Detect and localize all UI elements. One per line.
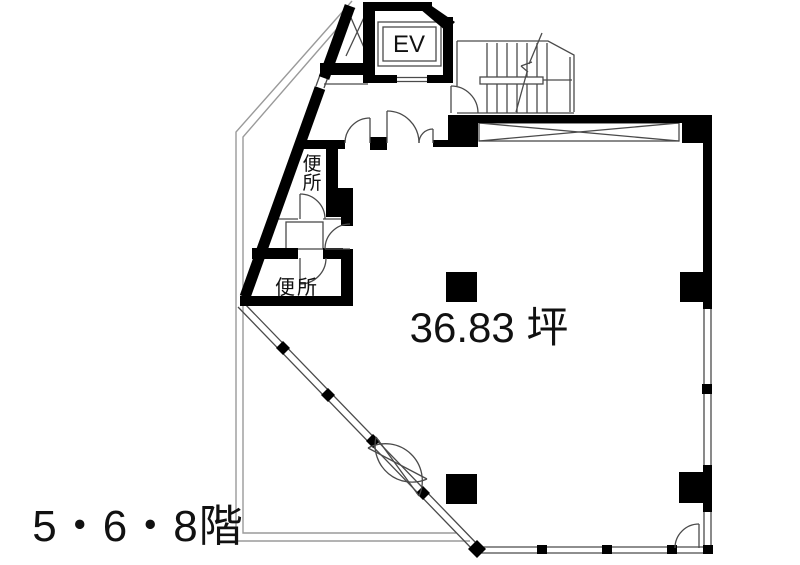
main-entry-double-door (387, 111, 433, 143)
toilet-upper-label-char1: 便 (302, 153, 321, 175)
mullion (702, 384, 712, 394)
ev-wall-right (443, 17, 453, 83)
hall-wall-piece (370, 137, 387, 150)
right-column-lower (679, 472, 703, 503)
toilet-lower-label: 便所 (275, 276, 319, 299)
labels: EV 便 所 便所 36.83 坪 5・6・8階 (32, 31, 568, 551)
hall-wall-right-piece (433, 140, 448, 147)
column (446, 272, 477, 302)
diagonal-window-frame (316, 75, 320, 86)
mullion (602, 545, 612, 554)
stair-direction-arrow (516, 33, 542, 112)
column (446, 474, 477, 504)
diagonal-double-swing-door (368, 437, 427, 496)
mullion-diamond (321, 388, 335, 402)
toilet-jog-block (326, 188, 353, 217)
floors-label: 5・6・8階 (32, 502, 243, 551)
top-wall-band (448, 115, 682, 123)
ev-wall-bottom-r (427, 75, 453, 83)
x-brace-window (479, 123, 679, 141)
ev-wall-bottom-l (363, 75, 397, 83)
stair-door (451, 86, 478, 113)
vanity-counter (286, 222, 323, 249)
bottom-window (481, 547, 712, 553)
toilet-upper-door (300, 194, 325, 219)
anteroom-door (325, 224, 350, 249)
toilet1-right-wall (326, 149, 338, 190)
floor-plan: EV 便 所 便所 36.83 坪 5・6・8階 (0, 0, 800, 565)
toilet-upper-label-char2: 所 (302, 172, 321, 194)
elevator-label: EV (393, 31, 425, 58)
area-label: 36.83 坪 (410, 304, 569, 351)
corner-mullion (703, 545, 713, 554)
mullion-diamond (276, 341, 290, 355)
mullion-diamond (468, 540, 486, 558)
stair-handrail (480, 77, 543, 84)
floor-plan-page: EV 便 所 便所 36.83 坪 5・6・8階 (0, 0, 800, 565)
right-wall-lower (703, 465, 712, 512)
right-column-upper (680, 272, 707, 302)
hall-left-door (345, 118, 370, 143)
ev-wall-left (363, 2, 375, 83)
mullion-diamond (416, 486, 430, 500)
bottom-right-door (675, 524, 699, 548)
mullion (537, 545, 547, 554)
